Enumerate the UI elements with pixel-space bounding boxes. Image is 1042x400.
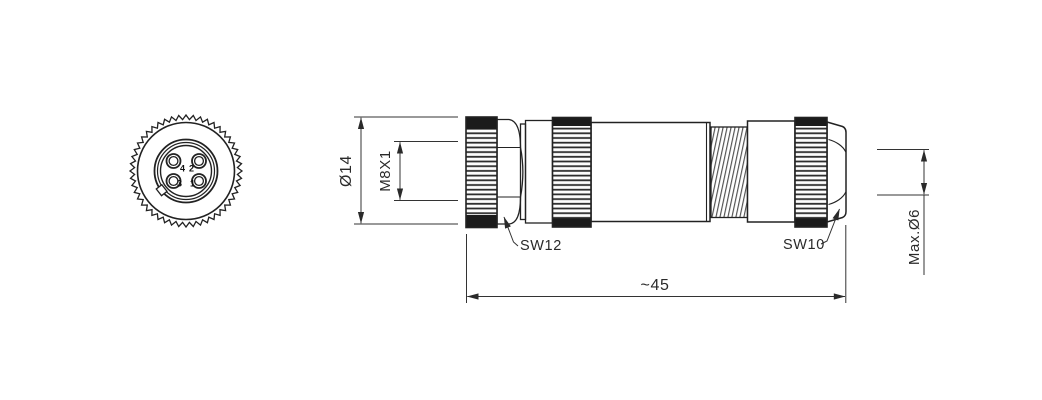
pin-number-1: 1: [190, 179, 195, 189]
back-knurl-ring: [795, 118, 827, 228]
pin-number-4: 4: [180, 164, 185, 174]
dim-thread-spec: M8X1: [377, 142, 458, 201]
dim-outer-diameter: Ø14: [338, 117, 458, 224]
pin-top-right: [192, 154, 206, 168]
thread-section: [711, 127, 748, 218]
hex-flats: [497, 120, 523, 225]
coupling-nut-knurled: [466, 117, 497, 228]
pin-number-2: 2: [189, 164, 194, 174]
gland-collar: [748, 121, 796, 222]
dim-outer-diameter-label: Ø14: [338, 155, 355, 187]
spacer-cylinder: [526, 121, 553, 224]
dim-thread-spec-label: M8X1: [377, 150, 394, 192]
dim-max-cable-diameter: Max.Ø6: [877, 150, 929, 276]
back-wrench-size-label: SW10: [783, 237, 825, 253]
dim-max-cable-diameter-label: Max.Ø6: [906, 209, 923, 265]
dim-overall-length-label: ~45: [641, 277, 670, 294]
mid-knurl-ring: [553, 118, 592, 228]
pin-number-3: 3: [177, 179, 182, 189]
front-view: 4 2 3 1: [130, 115, 242, 227]
connector-technical-drawing: 4 2 3 1: [0, 0, 1042, 400]
back-nut: [827, 122, 846, 222]
pin-top-left: [167, 154, 181, 168]
side-view: [466, 117, 846, 228]
body-cylinder: [591, 123, 710, 222]
front-wrench-size-label: SW12: [520, 238, 562, 254]
drawing-canvas: 4 2 3 1: [0, 0, 1042, 400]
